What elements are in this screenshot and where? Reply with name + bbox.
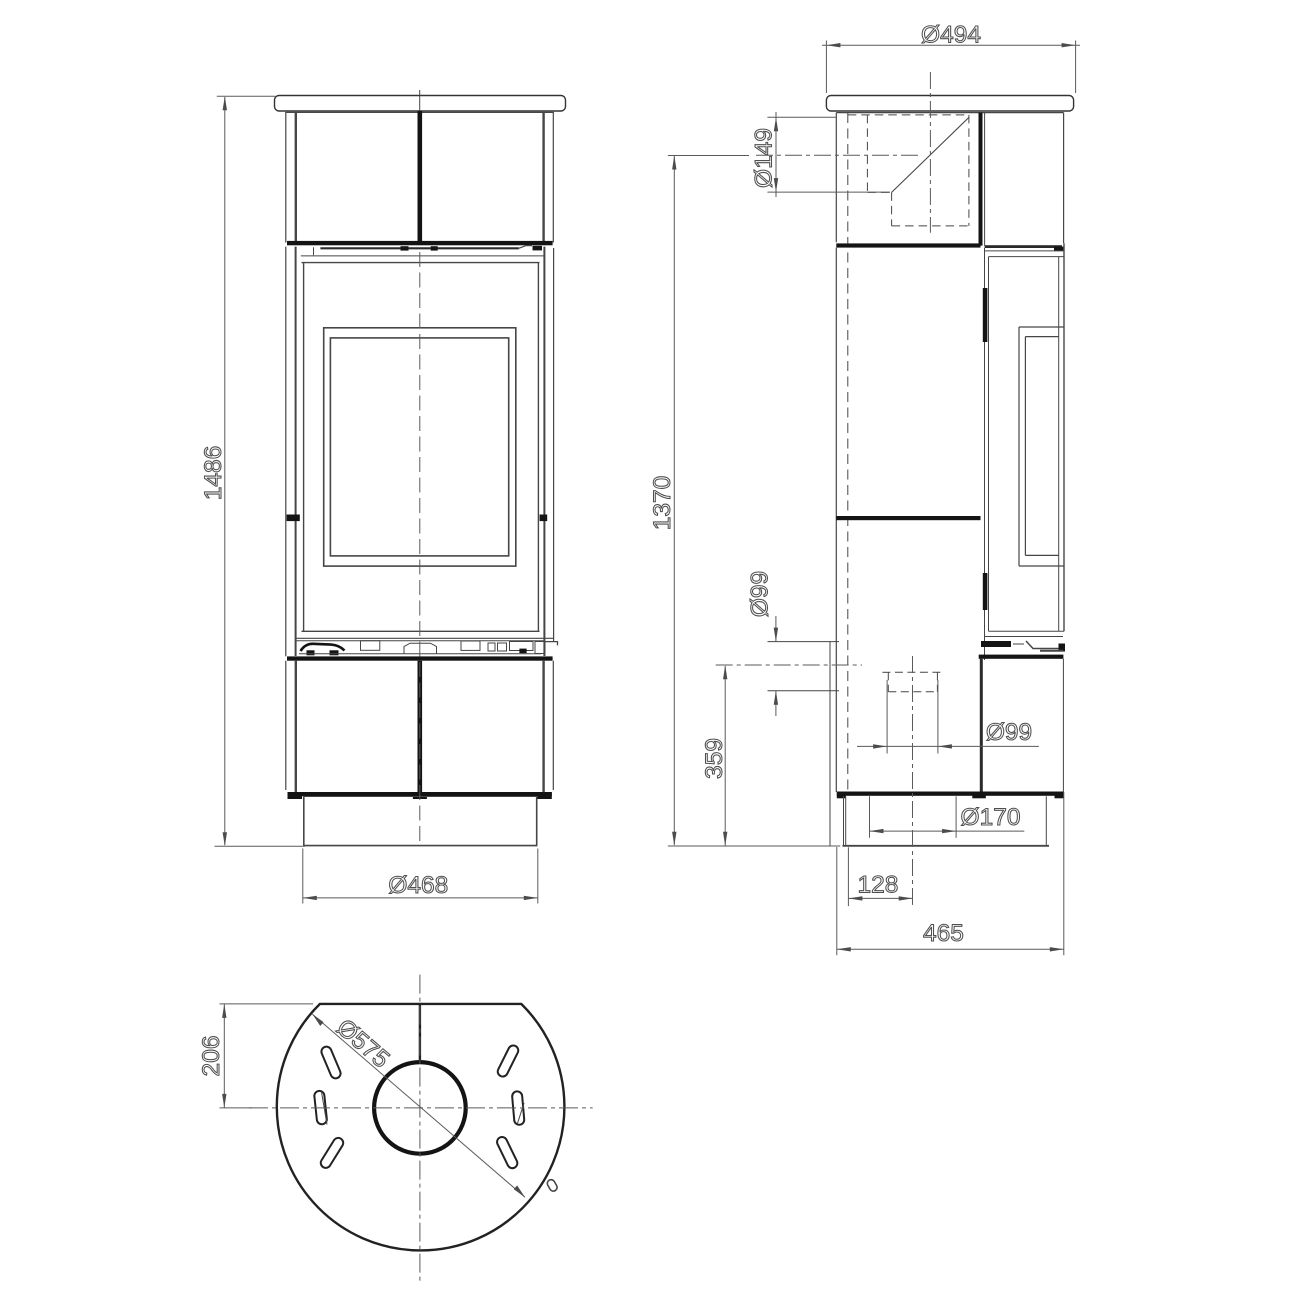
svg-text:Ø494: Ø494: [921, 22, 981, 49]
svg-text:Ø99: Ø99: [747, 571, 774, 617]
svg-text:Ø468: Ø468: [388, 872, 448, 899]
svg-text:206: 206: [198, 1036, 225, 1077]
svg-text:1370: 1370: [649, 476, 676, 531]
svg-text:128: 128: [858, 872, 899, 899]
svg-text:1486: 1486: [200, 446, 227, 501]
svg-text:359: 359: [701, 738, 728, 779]
svg-text:465: 465: [923, 920, 964, 947]
svg-text:Ø575: Ø575: [331, 1014, 394, 1074]
svg-text:Ø170: Ø170: [961, 804, 1021, 831]
svg-text:Ø99: Ø99: [986, 719, 1032, 746]
svg-text:Ø149: Ø149: [751, 128, 778, 188]
